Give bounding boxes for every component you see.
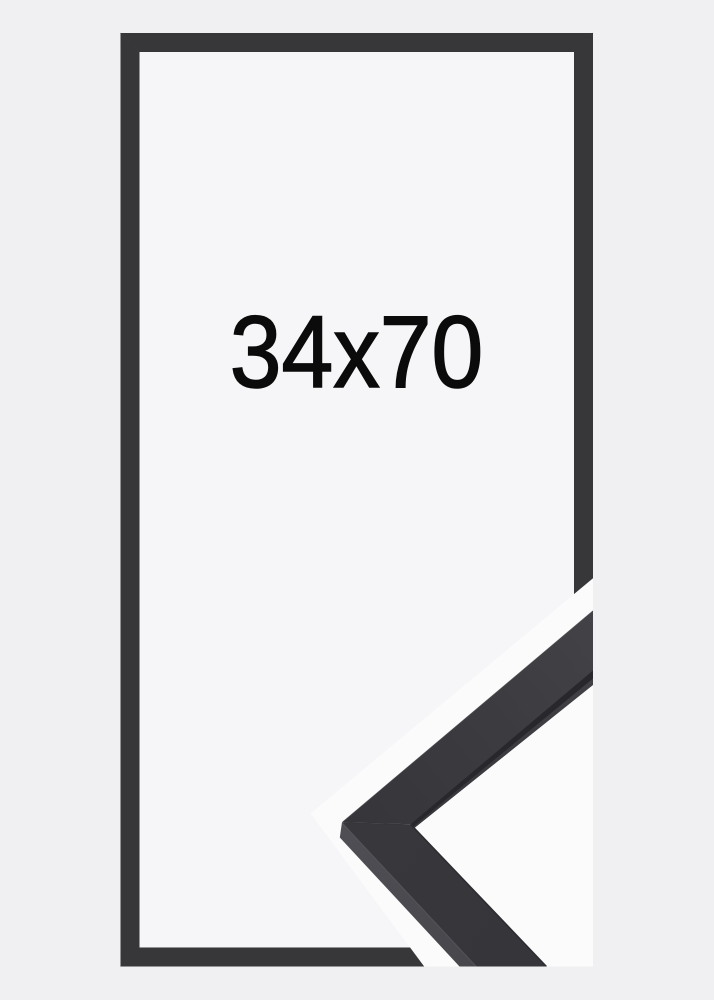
svg-text:34x70: 34x70 bbox=[230, 295, 483, 409]
